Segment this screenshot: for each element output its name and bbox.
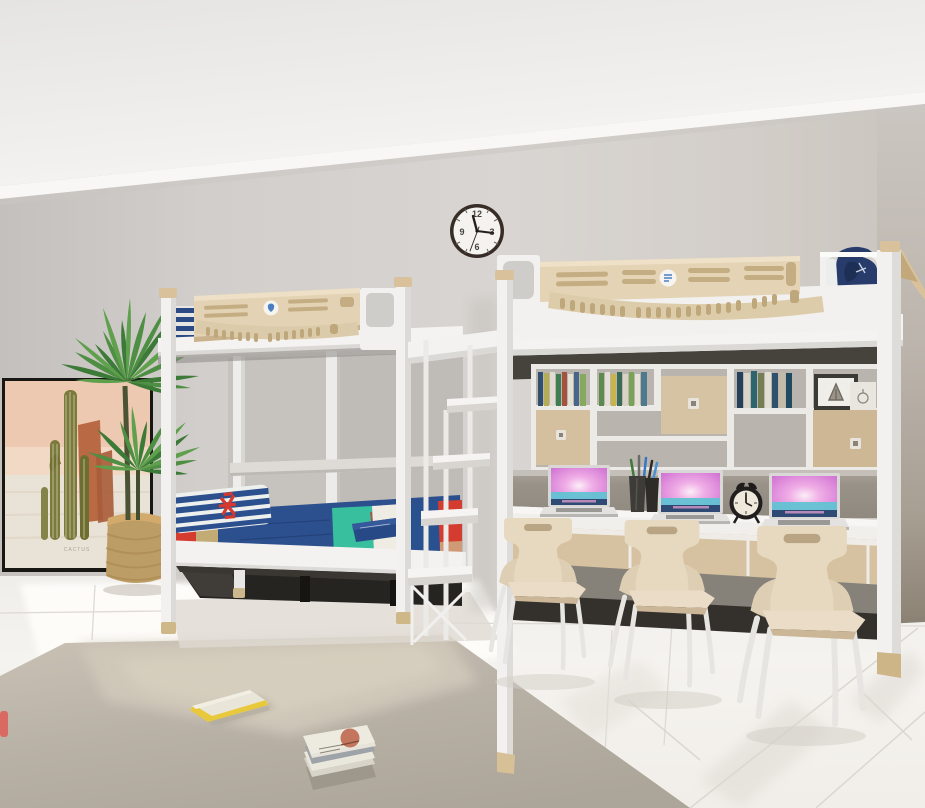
svg-text:6: 6: [474, 242, 479, 252]
svg-text:CACTUS: CACTUS: [64, 547, 91, 553]
svg-text:9: 9: [459, 227, 464, 237]
